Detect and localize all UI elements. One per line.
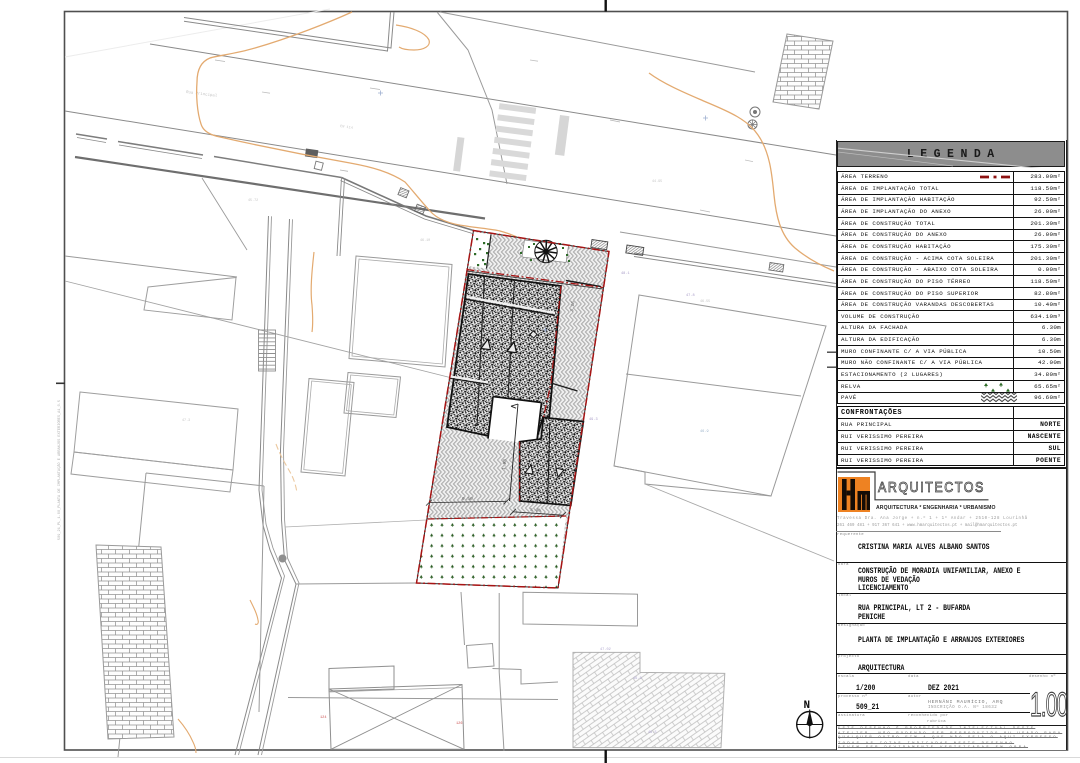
- svg-text:46.8: 46.8: [633, 677, 642, 681]
- svg-text:126: 126: [456, 722, 462, 726]
- svg-text:47.8: 47.8: [686, 294, 695, 298]
- svg-text:46.55: 46.55: [700, 300, 710, 304]
- svg-text:44.95: 44.95: [652, 180, 662, 184]
- svg-text:49.3: 49.3: [589, 418, 598, 422]
- svg-text:46.10: 46.10: [420, 239, 430, 243]
- svg-text:45.72: 45.72: [248, 199, 258, 203]
- svg-text:47.3: 47.3: [182, 419, 190, 423]
- svg-text:3.06: 3.06: [530, 507, 541, 514]
- svg-text:47.02: 47.02: [600, 648, 611, 652]
- svg-text:46.9: 46.9: [700, 430, 709, 434]
- svg-text:124: 124: [320, 716, 326, 720]
- svg-text:9.50: 9.50: [462, 496, 473, 502]
- svg-text:46.5: 46.5: [648, 731, 657, 735]
- svg-text:509_21_PL_1.00_PLANTA DE IMPLA: 509_21_PL_1.00_PLANTA DE IMPLANTAÇÃO E A…: [57, 400, 62, 540]
- svg-text:48.1: 48.1: [621, 272, 630, 276]
- svg-text:N: N: [804, 700, 811, 712]
